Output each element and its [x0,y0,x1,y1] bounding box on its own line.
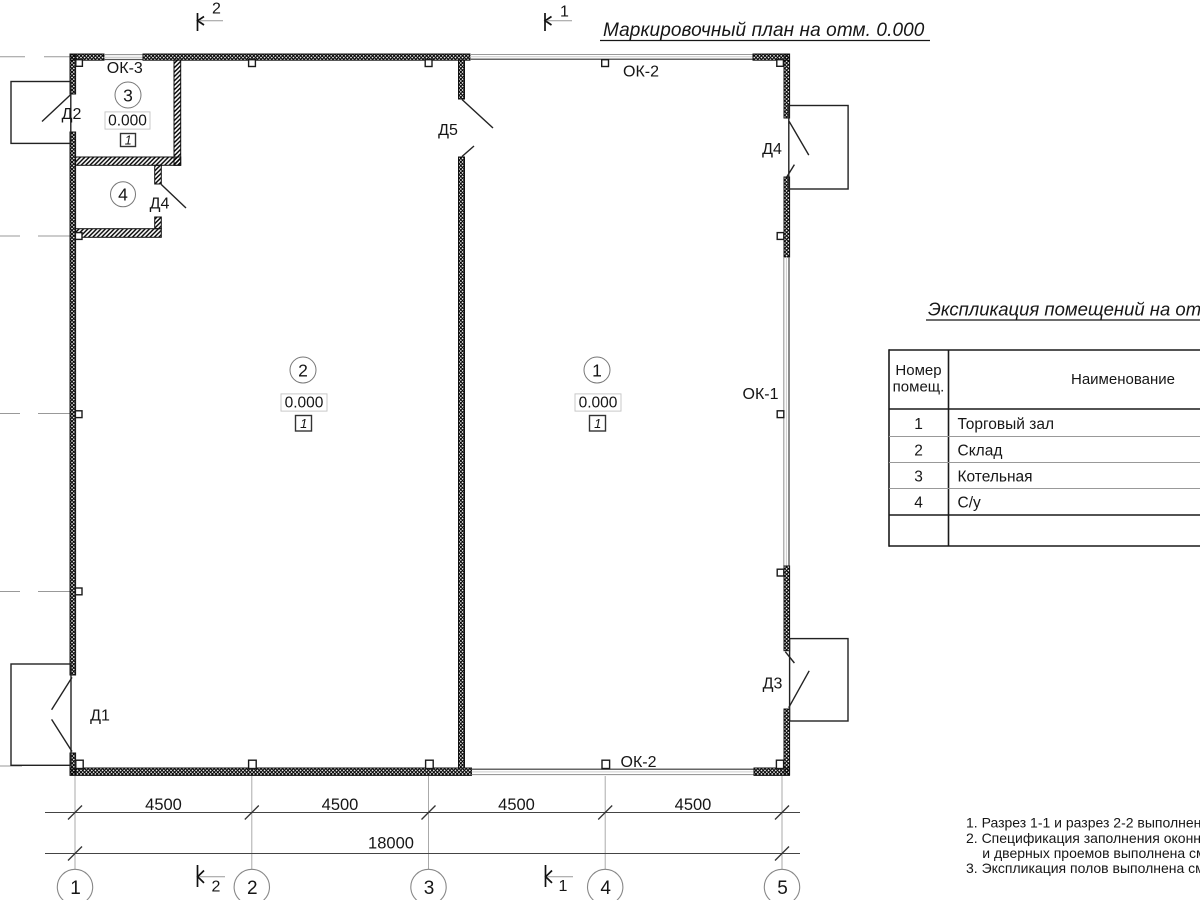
svg-text:1: 1 [70,878,81,899]
svg-text:Д3: Д3 [763,676,783,693]
svg-text:3. Экспликация полов выполнена: 3. Экспликация полов выполнена см. лист … [966,860,1200,876]
svg-text:3: 3 [424,878,435,899]
svg-text:Склад: Склад [958,443,1003,460]
svg-text:2: 2 [212,1,221,18]
svg-text:2: 2 [914,443,923,460]
svg-text:Д2: Д2 [62,106,82,123]
svg-text:Д5: Д5 [438,122,458,139]
svg-text:С/у: С/у [958,495,982,512]
svg-text:4: 4 [118,185,128,205]
svg-text:и дверных проемов выполнена см: и дверных проемов выполнена см. лист 5 [982,845,1200,861]
svg-text:ОК-3: ОК-3 [107,60,143,77]
svg-text:4500: 4500 [498,796,535,814]
svg-text:Наименование: Наименование [1071,371,1175,388]
svg-text:3: 3 [123,85,133,105]
svg-text:4500: 4500 [145,796,182,814]
svg-text:3: 3 [914,469,923,486]
svg-text:0.000: 0.000 [108,113,147,130]
svg-text:2: 2 [298,360,308,380]
svg-text:1: 1 [592,360,602,380]
svg-text:1: 1 [914,416,923,433]
svg-text:4500: 4500 [675,796,712,814]
svg-text:0.000: 0.000 [285,395,324,412]
svg-text:Д4: Д4 [150,196,170,213]
svg-text:4: 4 [600,878,611,899]
svg-text:5: 5 [777,878,788,899]
svg-text:Экспликация помещений на отм.: Экспликация помещений на отм. 0.000 [928,299,1200,320]
svg-text:Торговый зал: Торговый зал [958,416,1055,433]
svg-text:1: 1 [300,416,307,431]
svg-text:ОК-1: ОК-1 [743,386,779,403]
svg-text:2. Спецификация заполнения око: 2. Спецификация заполнения оконных [966,830,1200,846]
svg-text:1: 1 [125,133,132,147]
svg-text:4500: 4500 [322,796,359,814]
svg-text:Д1: Д1 [90,708,110,725]
svg-text:1: 1 [560,4,569,21]
svg-text:2: 2 [212,879,221,896]
svg-text:ОК-2: ОК-2 [623,64,659,81]
svg-text:ОК-2: ОК-2 [621,754,657,771]
svg-text:0.000: 0.000 [579,395,618,412]
svg-text:4: 4 [914,495,923,512]
svg-text:1. Разрез 1-1 и разрез 2-2 вып: 1. Разрез 1-1 и разрез 2-2 выполнены на … [966,815,1200,831]
svg-text:помещ.: помещ. [893,379,945,396]
svg-text:Номер: Номер [895,362,941,379]
svg-text:Маркировочный план на отм. 0.0: Маркировочный план на отм. 0.000 [603,20,925,41]
svg-text:1: 1 [594,416,601,431]
svg-text:Д4: Д4 [762,141,782,158]
svg-text:1: 1 [559,878,568,895]
svg-text:2: 2 [247,878,258,899]
svg-text:18000: 18000 [368,835,414,853]
svg-text:Котельная: Котельная [958,469,1033,486]
